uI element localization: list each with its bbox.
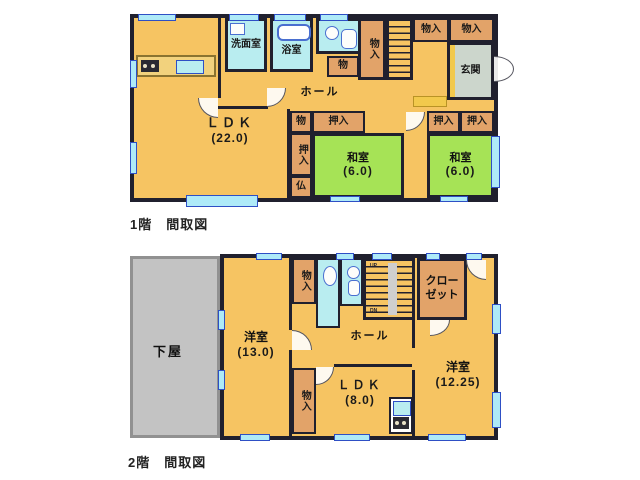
window: [491, 136, 500, 188]
window: [256, 253, 282, 260]
room-storage-top-2f: 物入: [292, 258, 316, 304]
closet-mid-label: 押入: [329, 117, 349, 128]
window: [138, 14, 176, 21]
room-closet-left: 押入: [290, 133, 312, 176]
room-storage-tr2: 物入: [449, 18, 494, 42]
stairs-2f: UP DN: [363, 258, 415, 320]
room-storage-tall-1f: 物入: [358, 18, 386, 80]
window: [130, 142, 137, 174]
storage-tr2-label: 物入: [462, 25, 482, 36]
stairs-stringer: [388, 263, 397, 315]
ldk-2f: ＬＤＫ (8.0): [328, 376, 392, 407]
kitchen-sink-icon: [393, 401, 411, 416]
window: [229, 14, 259, 21]
washbasin-icon: [230, 23, 245, 35]
room-closet-mid: 押入: [312, 111, 365, 133]
room-closet-r1: 押入: [427, 111, 460, 133]
washbasin-icon: [323, 266, 337, 286]
stove-icon: [393, 417, 409, 429]
yoshitsu1225: 洋室 (12.25): [424, 358, 492, 389]
room-entrance: 玄関: [447, 42, 494, 100]
window: [130, 60, 137, 88]
window: [428, 434, 466, 441]
altar-label: 仏: [296, 182, 306, 193]
floor1-plan: 洗面室 浴室 物 物入 物入 物入 玄関: [130, 14, 498, 202]
room-toilet-1f: [316, 18, 361, 54]
storage-tr1-label: 物入: [421, 25, 441, 36]
room-altar: 仏: [290, 176, 312, 198]
toilet-tank-icon: [341, 29, 357, 49]
washitsu2-size: (6.0): [446, 165, 476, 178]
entrance-step: [413, 96, 447, 107]
room-washitsu-1: 和室 (6.0): [312, 133, 404, 198]
yoshitsu13-label: 洋室: [224, 328, 288, 345]
stove-icon: [141, 60, 159, 72]
hall-2f: ホール: [340, 326, 400, 344]
stairs-up-label: UP: [370, 264, 377, 269]
ldk-2f-size: (8.0): [328, 393, 392, 407]
window: [372, 253, 392, 260]
ldk-1f-size: (22.0): [180, 131, 280, 145]
window: [240, 434, 270, 441]
closet-left-label: 押入: [296, 144, 307, 166]
window-porch: [186, 195, 258, 207]
hall-2f-label: ホール: [351, 330, 390, 342]
storage-tall-label: 物入: [367, 38, 378, 60]
room-washitsu-2: 和室 (6.0): [427, 133, 494, 198]
window: [330, 196, 360, 202]
window: [320, 14, 348, 21]
storage-mid-label: 物: [296, 117, 306, 128]
toilet-icon: [347, 266, 360, 279]
window: [466, 253, 482, 260]
room-storage-bottom-2f: 物入: [292, 368, 316, 434]
closet-r2-label: 押入: [467, 117, 487, 128]
floor2-caption: 2階 間取図: [128, 452, 206, 471]
toilet-icon: [325, 26, 339, 40]
room-closet-2f: クローゼット: [417, 258, 467, 320]
washroom-label: 洗面室: [231, 40, 261, 51]
hall-1f-label: ホール: [301, 86, 340, 98]
window: [492, 304, 501, 334]
room-storage-small-1f: 物: [327, 56, 359, 77]
floor2-plan: 下屋 洋室 (13.0) 物入 UP DN: [128, 252, 502, 444]
ldk-1f-label: ＬＤＫ: [180, 112, 280, 131]
wall-segment: [218, 106, 268, 109]
room-storage-mid: 物: [290, 111, 312, 133]
window: [492, 392, 501, 428]
closet-r1-label: 押入: [434, 117, 454, 128]
room-closet-r2: 押入: [460, 111, 494, 133]
yoshitsu1225-label: 洋室: [424, 358, 492, 375]
room-bathroom: 浴室: [270, 18, 313, 72]
room-washroom: 洗面室: [225, 18, 267, 72]
stairs-down-label: DN: [370, 309, 377, 314]
lower-roof-label: 下屋: [153, 345, 183, 359]
window: [218, 310, 225, 330]
wall-segment: [412, 320, 415, 348]
toilet-tank-icon: [348, 280, 360, 296]
yoshitsu13-size: (13.0): [224, 345, 288, 359]
entrance-door-arc: [494, 56, 514, 82]
closet-2f-label: クローゼット: [424, 275, 459, 303]
window: [426, 253, 440, 260]
ldk-2f-label: ＬＤＫ: [328, 376, 392, 393]
bathtub-icon: [277, 24, 311, 41]
bathroom-label: 浴室: [282, 46, 302, 57]
storage-top-2f-label: 物入: [299, 270, 310, 292]
room-toilet-2f: [340, 258, 363, 306]
storage-bottom-2f-label: 物入: [299, 390, 310, 412]
floor1-caption: 1階 間取図: [130, 214, 208, 233]
floorplan-canvas: 洗面室 浴室 物 物入 物入 物入 玄関: [0, 0, 640, 480]
kitchenette-2f: [389, 397, 413, 434]
kitchen-sink-icon: [176, 60, 204, 74]
ldk-1f: ＬＤＫ (22.0): [180, 112, 280, 145]
stairs-1f: [386, 18, 413, 80]
wall-segment: [218, 18, 221, 98]
washitsu1-size: (6.0): [343, 165, 373, 178]
entrance-step-strip: [450, 45, 455, 97]
yoshitsu13: 洋室 (13.0): [224, 328, 288, 359]
entrance-label: 玄関: [461, 66, 481, 77]
window: [274, 14, 306, 21]
yoshitsu1225-size: (12.25): [424, 375, 492, 389]
room-storage-tr1: 物入: [413, 18, 449, 42]
window: [218, 370, 225, 390]
storage-small-label: 物: [338, 61, 348, 72]
room-washcorner-2f: [316, 258, 340, 328]
kitchen-counter: [136, 55, 216, 77]
window: [336, 253, 354, 260]
room-lower-roof: 下屋: [130, 256, 220, 438]
hall-1f: ホール: [288, 82, 352, 100]
wall-segment: [334, 364, 412, 367]
window: [334, 434, 370, 441]
window: [440, 196, 468, 202]
